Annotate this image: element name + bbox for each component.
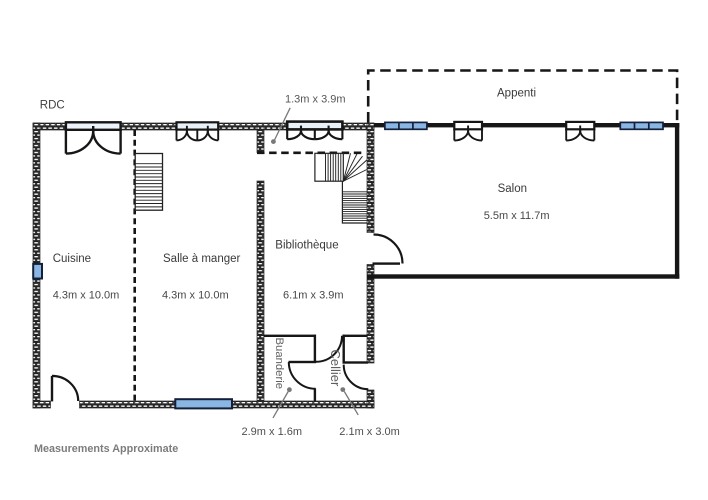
svg-text:Cuisine: Cuisine — [53, 253, 91, 265]
svg-text:5.5m x 11.7m: 5.5m x 11.7m — [484, 210, 550, 222]
svg-text:Measurements Approximate: Measurements Approximate — [34, 443, 178, 455]
svg-text:1.3m x 3.9m: 1.3m x 3.9m — [285, 94, 346, 106]
svg-text:2.9m x 1.6m: 2.9m x 1.6m — [242, 426, 303, 438]
svg-text:Cellier: Cellier — [328, 350, 343, 388]
svg-text:Buanderie: Buanderie — [273, 338, 285, 390]
svg-text:Appenti: Appenti — [497, 88, 536, 100]
svg-text:RDC: RDC — [40, 99, 65, 111]
svg-text:Bibliothèque: Bibliothèque — [275, 240, 338, 252]
svg-text:Salon: Salon — [498, 183, 527, 195]
svg-text:4.3m x 10.0m: 4.3m x 10.0m — [53, 289, 120, 301]
svg-text:Salle à manger: Salle à manger — [163, 253, 241, 265]
svg-text:2.1m x 3.0m: 2.1m x 3.0m — [339, 426, 400, 438]
svg-text:6.1m x 3.9m: 6.1m x 3.9m — [283, 289, 344, 301]
svg-text:4.3m x 10.0m: 4.3m x 10.0m — [162, 289, 229, 301]
